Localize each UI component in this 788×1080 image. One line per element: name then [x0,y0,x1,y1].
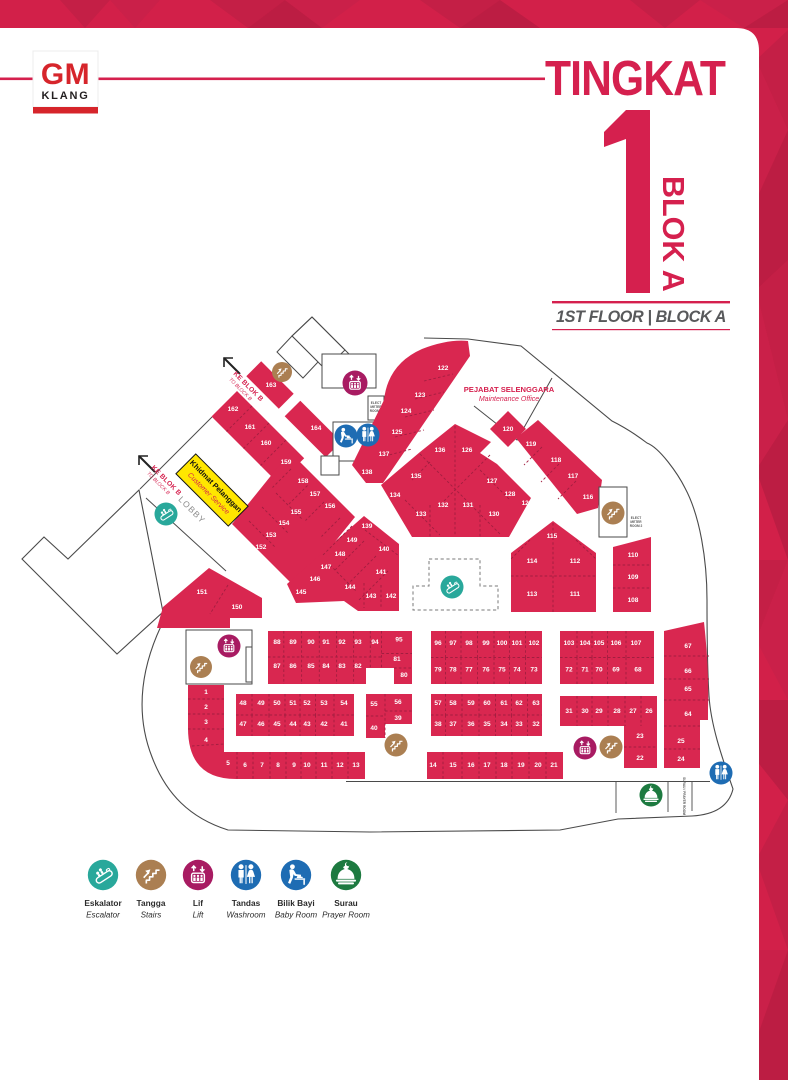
svg-text:11: 11 [321,762,328,769]
svg-text:44: 44 [289,721,297,728]
svg-text:81: 81 [393,656,401,663]
svg-text:158: 158 [298,478,309,485]
svg-text:59: 59 [467,700,475,707]
svg-text:104: 104 [580,640,591,647]
svg-text:47: 47 [239,721,247,728]
svg-text:SURAU / PRAYER ROOM: SURAU / PRAYER ROOM [682,777,686,815]
svg-text:67: 67 [684,643,692,650]
svg-text:135: 135 [411,473,422,480]
svg-text:155: 155 [291,509,302,516]
svg-text:TINGKAT: TINGKAT [545,50,726,105]
svg-text:125: 125 [392,429,403,436]
svg-text:30: 30 [581,708,589,715]
svg-text:133: 133 [416,511,427,518]
svg-text:9: 9 [292,762,296,769]
svg-text:148: 148 [335,551,346,558]
svg-text:36: 36 [467,721,475,728]
svg-text:65: 65 [684,686,692,693]
svg-text:40: 40 [370,725,378,732]
svg-text:Lift: Lift [193,911,205,920]
svg-text:128: 128 [505,491,516,498]
svg-text:52: 52 [303,700,311,707]
svg-text:154: 154 [279,520,290,527]
svg-text:8: 8 [276,762,280,769]
svg-text:17: 17 [483,762,491,769]
svg-text:29: 29 [595,708,603,715]
svg-text:111: 111 [570,591,581,598]
svg-text:Stairs: Stairs [141,911,162,920]
svg-text:74: 74 [513,666,521,673]
svg-text:60: 60 [483,700,491,707]
svg-text:127: 127 [487,478,498,485]
svg-text:106: 106 [611,640,622,647]
svg-text:13: 13 [352,762,360,769]
svg-text:56: 56 [394,699,402,706]
svg-text:105: 105 [594,640,605,647]
svg-text:92: 92 [338,639,346,646]
svg-text:57: 57 [434,700,442,707]
svg-text:77: 77 [465,666,473,673]
svg-text:54: 54 [340,700,348,707]
svg-text:149: 149 [347,537,358,544]
svg-text:113: 113 [527,591,538,598]
svg-text:6: 6 [243,762,247,769]
svg-text:114: 114 [527,558,538,565]
svg-text:50: 50 [273,700,281,707]
svg-text:119: 119 [526,441,537,448]
svg-text:Eskalator: Eskalator [84,898,122,908]
svg-text:75: 75 [498,666,506,673]
svg-text:131: 131 [463,502,474,509]
svg-text:Surau: Surau [334,898,358,908]
svg-text:140: 140 [379,546,390,553]
svg-text:85: 85 [307,663,315,670]
svg-text:43: 43 [303,721,311,728]
svg-text:164: 164 [311,425,322,432]
svg-text:69: 69 [612,666,620,673]
svg-text:28: 28 [613,708,621,715]
svg-text:12: 12 [336,762,344,769]
svg-text:122: 122 [438,365,449,372]
svg-text:25: 25 [677,738,685,745]
svg-text:102: 102 [529,640,540,647]
svg-text:129: 129 [522,500,533,507]
svg-text:62: 62 [515,700,523,707]
svg-text:130: 130 [489,511,500,518]
svg-text:112: 112 [570,558,581,565]
svg-text:7: 7 [260,762,264,769]
svg-text:38: 38 [434,721,442,728]
svg-text:41: 41 [340,721,348,728]
svg-text:124: 124 [401,408,412,415]
svg-text:84: 84 [322,663,330,670]
svg-text:143: 143 [366,593,377,600]
svg-text:139: 139 [362,523,373,530]
svg-text:97: 97 [449,640,457,647]
svg-text:163: 163 [266,382,277,389]
svg-text:Washroom: Washroom [227,911,266,920]
svg-text:95: 95 [395,637,403,644]
svg-text:24: 24 [677,756,685,763]
svg-text:134: 134 [390,492,401,499]
svg-text:Escalator: Escalator [86,911,120,920]
svg-text:18: 18 [500,762,508,769]
svg-text:161: 161 [245,424,256,431]
svg-text:Prayer Room: Prayer Room [322,911,370,920]
svg-text:132: 132 [438,502,449,509]
svg-text:147: 147 [321,564,332,571]
svg-text:21: 21 [550,762,558,769]
svg-text:145: 145 [296,589,307,596]
svg-text:153: 153 [266,532,277,539]
svg-text:151: 151 [197,589,208,596]
svg-text:136: 136 [435,447,446,454]
svg-text:144: 144 [345,584,356,591]
svg-text:45: 45 [273,721,281,728]
svg-text:159: 159 [281,459,292,466]
svg-text:Lif: Lif [193,898,203,908]
svg-text:27: 27 [629,708,637,715]
svg-text:78: 78 [449,666,457,673]
svg-text:71: 71 [581,666,589,673]
svg-text:10: 10 [303,762,311,769]
svg-text:31: 31 [565,708,573,715]
svg-text:16: 16 [467,762,475,769]
svg-text:162: 162 [228,406,239,413]
svg-text:PEJABAT SELENGGARA: PEJABAT SELENGGARA [464,385,555,394]
svg-text:91: 91 [322,639,330,646]
svg-text:GM: GM [41,58,90,91]
svg-text:126: 126 [462,447,473,454]
svg-text:Bilik Bayi: Bilik Bayi [277,898,314,908]
svg-text:14: 14 [429,762,437,769]
svg-text:Baby Room: Baby Room [275,911,318,920]
svg-text:80: 80 [400,672,408,679]
svg-text:94: 94 [371,639,379,646]
svg-text:88: 88 [273,639,281,646]
svg-text:5: 5 [226,760,230,767]
svg-text:23: 23 [636,733,644,740]
svg-text:53: 53 [320,700,328,707]
svg-text:1ST FLOOR | BLOCK A: 1ST FLOOR | BLOCK A [556,308,726,326]
svg-text:156: 156 [325,503,336,510]
svg-text:64: 64 [684,711,692,718]
svg-text:68: 68 [634,666,642,673]
svg-text:70: 70 [595,666,603,673]
svg-text:63: 63 [532,700,540,707]
svg-text:22: 22 [636,755,644,762]
svg-text:76: 76 [482,666,490,673]
svg-text:Tangga: Tangga [137,898,166,908]
svg-text:3: 3 [204,719,208,726]
svg-text:141: 141 [376,569,387,576]
svg-text:55: 55 [370,701,378,708]
svg-text:110: 110 [628,552,639,559]
svg-text:86: 86 [289,663,297,670]
svg-text:100: 100 [497,640,508,647]
svg-text:152: 152 [256,544,267,551]
svg-text:2: 2 [204,704,208,711]
svg-text:79: 79 [434,666,442,673]
svg-text:99: 99 [482,640,490,647]
svg-text:KLANG: KLANG [41,90,89,102]
svg-text:48: 48 [239,700,247,707]
svg-text:73: 73 [530,666,538,673]
svg-text:96: 96 [434,640,442,647]
svg-text:101: 101 [512,640,523,647]
svg-text:98: 98 [465,640,473,647]
svg-text:146: 146 [310,576,321,583]
svg-text:72: 72 [565,666,573,673]
svg-text:87: 87 [273,663,281,670]
svg-text:89: 89 [289,639,297,646]
svg-text:1: 1 [204,689,208,696]
svg-text:51: 51 [289,700,297,707]
svg-text:103: 103 [564,640,575,647]
svg-text:39: 39 [394,715,402,722]
svg-text:107: 107 [631,640,642,647]
svg-text:15: 15 [449,762,457,769]
svg-text:90: 90 [307,639,315,646]
svg-text:138: 138 [362,469,373,476]
svg-text:Maintenance Office: Maintenance Office [479,396,539,403]
svg-text:109: 109 [628,574,639,581]
svg-text:150: 150 [232,604,243,611]
svg-text:117: 117 [568,473,579,480]
svg-text:35: 35 [483,721,491,728]
svg-text:118: 118 [551,457,562,464]
svg-text:49: 49 [257,700,265,707]
svg-text:58: 58 [449,700,457,707]
svg-text:Tandas: Tandas [232,898,261,908]
svg-text:157: 157 [310,491,321,498]
svg-text:93: 93 [354,639,362,646]
svg-text:61: 61 [500,700,508,707]
svg-text:123: 123 [415,392,426,399]
svg-text:66: 66 [684,668,692,675]
svg-text:120: 120 [503,426,514,433]
svg-text:32: 32 [532,721,540,728]
svg-text:BLOK A: BLOK A [656,176,690,292]
svg-text:19: 19 [517,762,525,769]
svg-text:83: 83 [338,663,346,670]
svg-text:42: 42 [320,721,328,728]
svg-text:26: 26 [645,708,653,715]
svg-text:137: 137 [379,451,390,458]
svg-text:82: 82 [354,663,362,670]
svg-text:33: 33 [515,721,523,728]
svg-text:46: 46 [257,721,265,728]
svg-text:20: 20 [534,762,542,769]
svg-text:115: 115 [547,533,558,540]
svg-text:160: 160 [261,440,272,447]
svg-text:142: 142 [386,593,397,600]
svg-text:108: 108 [628,597,639,604]
svg-text:34: 34 [500,721,508,728]
svg-text:37: 37 [449,721,457,728]
svg-text:116: 116 [583,494,594,501]
svg-text:ROOM 2: ROOM 2 [630,524,643,528]
svg-text:4: 4 [204,737,208,744]
